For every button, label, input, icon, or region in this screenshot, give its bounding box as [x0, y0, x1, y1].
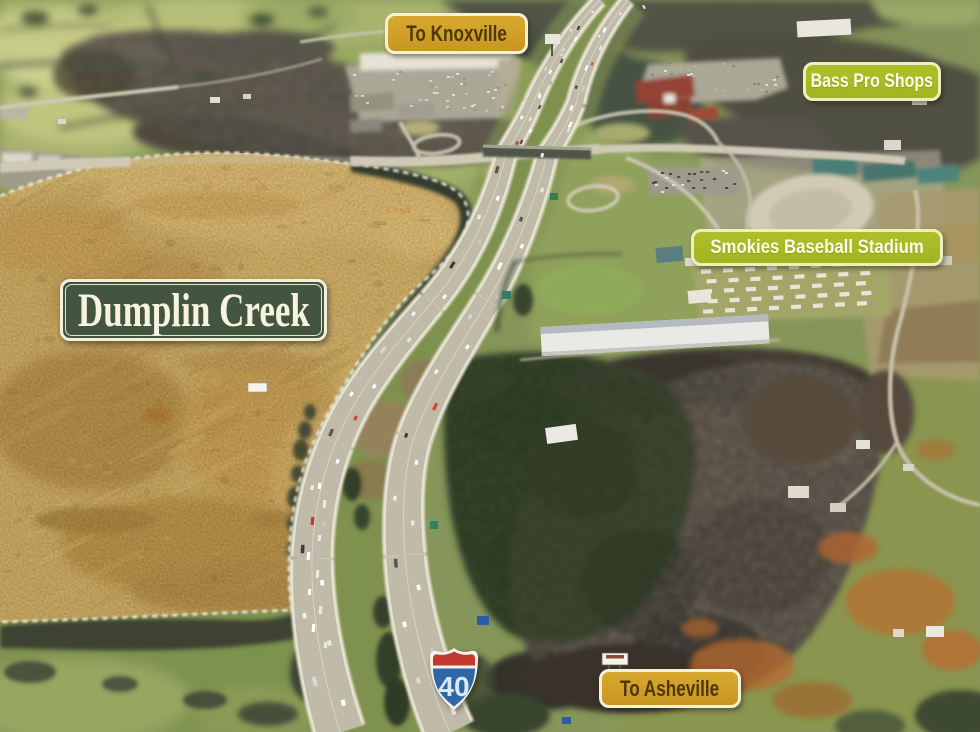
- svg-text:40: 40: [438, 671, 469, 702]
- svg-text:c×xd: c×xd: [386, 202, 412, 216]
